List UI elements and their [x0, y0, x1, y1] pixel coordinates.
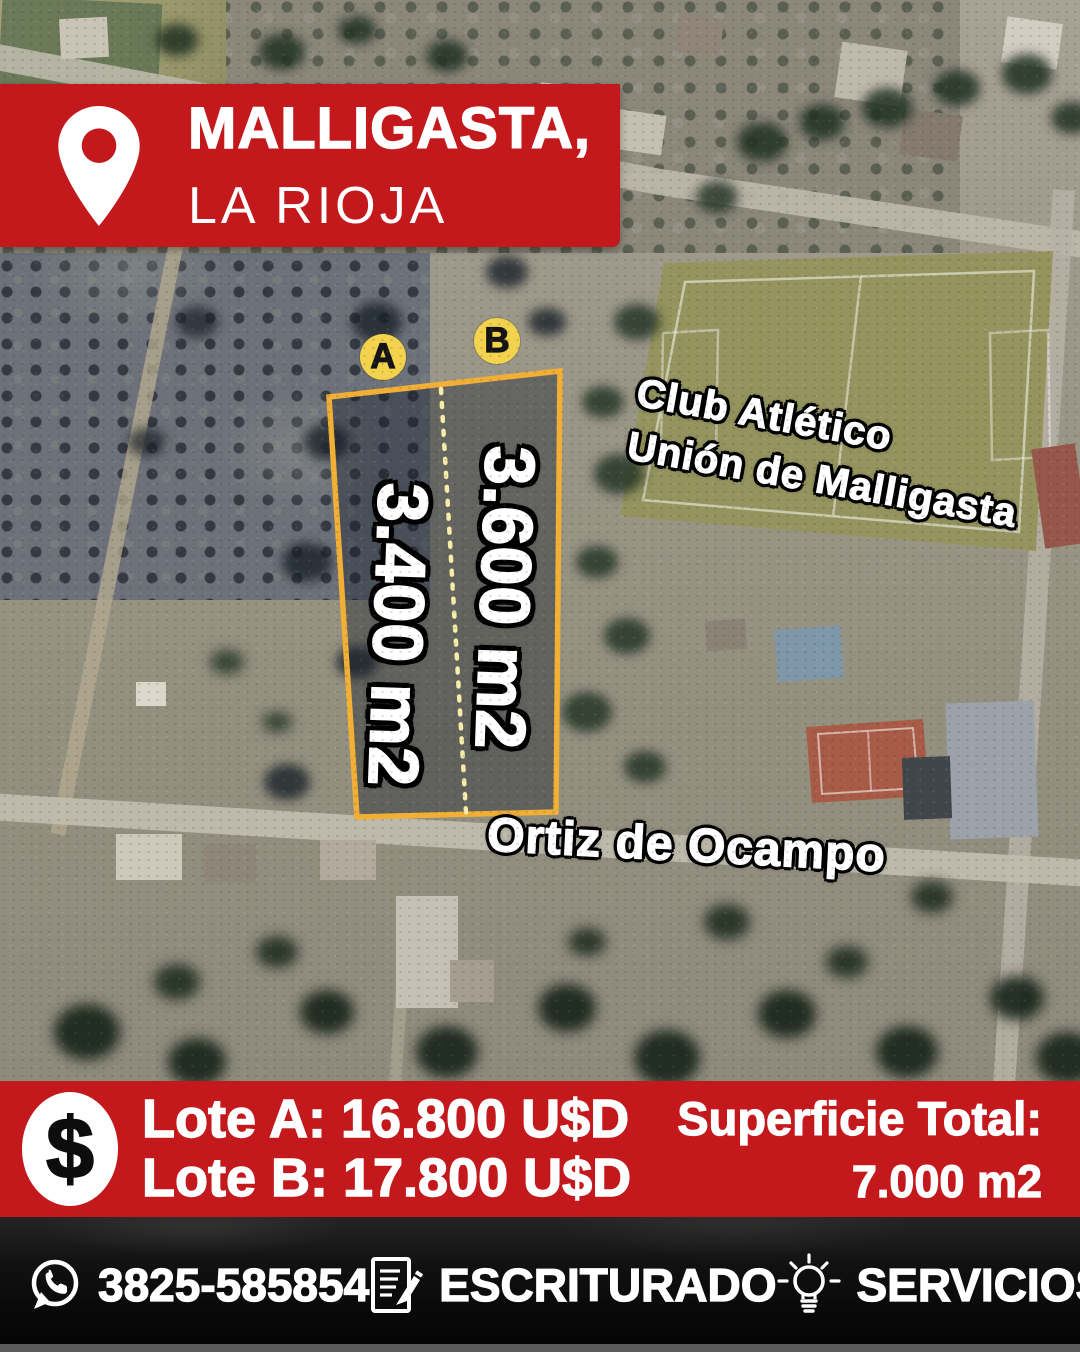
lot-a-badge-letter: A	[370, 337, 395, 377]
location-province: LA RIOJA	[188, 176, 591, 236]
escriturado-label: ESCRITURADO	[439, 1258, 776, 1312]
phone-group: 3825-585854	[26, 1257, 369, 1313]
location-pin-icon	[58, 106, 140, 226]
location-city: MALLIGASTA,	[188, 95, 591, 162]
lot-prices: Lote A: 16.800 U$D Lote B: 17.800 U$D	[142, 1090, 631, 1209]
servicios-group: SERVICIOS	[777, 1251, 1080, 1319]
lot-b-price: Lote B: 17.800 U$D	[142, 1149, 631, 1208]
lot-a-area-label: 3.400 m2	[353, 482, 444, 788]
whatsapp-icon	[26, 1257, 82, 1313]
phone-number: 3825-585854	[98, 1258, 369, 1312]
currency-symbol: $	[46, 1100, 94, 1199]
document-pencil-icon	[369, 1255, 423, 1315]
footer-bar: 3825-585854 ESCRITURADO	[0, 1217, 1080, 1352]
bottom-gray-strip	[0, 1344, 1080, 1352]
lot-a-badge: A	[360, 334, 406, 380]
total-surface-value: 7.000 m2	[677, 1156, 1042, 1208]
price-banner: $ Lote A: 16.800 U$D Lote B: 17.800 U$D …	[0, 1081, 1080, 1217]
total-surface-label: Superficie Total:	[677, 1091, 1042, 1146]
lot-a-price: Lote A: 16.800 U$D	[142, 1090, 631, 1149]
lot-b-badge: B	[474, 318, 520, 364]
total-surface: Superficie Total: 7.000 m2	[677, 1091, 1042, 1208]
lot-b-area-label: 3.600 m2	[460, 445, 551, 751]
servicios-label: SERVICIOS	[857, 1258, 1080, 1312]
lightbulb-icon	[777, 1251, 841, 1319]
location-banner: MALLIGASTA, LA RIOJA	[0, 84, 620, 247]
real-estate-flyer: A B 3.400 m2 3.600 m2 Club Atlético Unió…	[0, 0, 1080, 1352]
escriturado-group: ESCRITURADO	[369, 1255, 776, 1315]
dollar-icon: $	[22, 1092, 118, 1206]
lot-b-badge-letter: B	[484, 321, 509, 361]
